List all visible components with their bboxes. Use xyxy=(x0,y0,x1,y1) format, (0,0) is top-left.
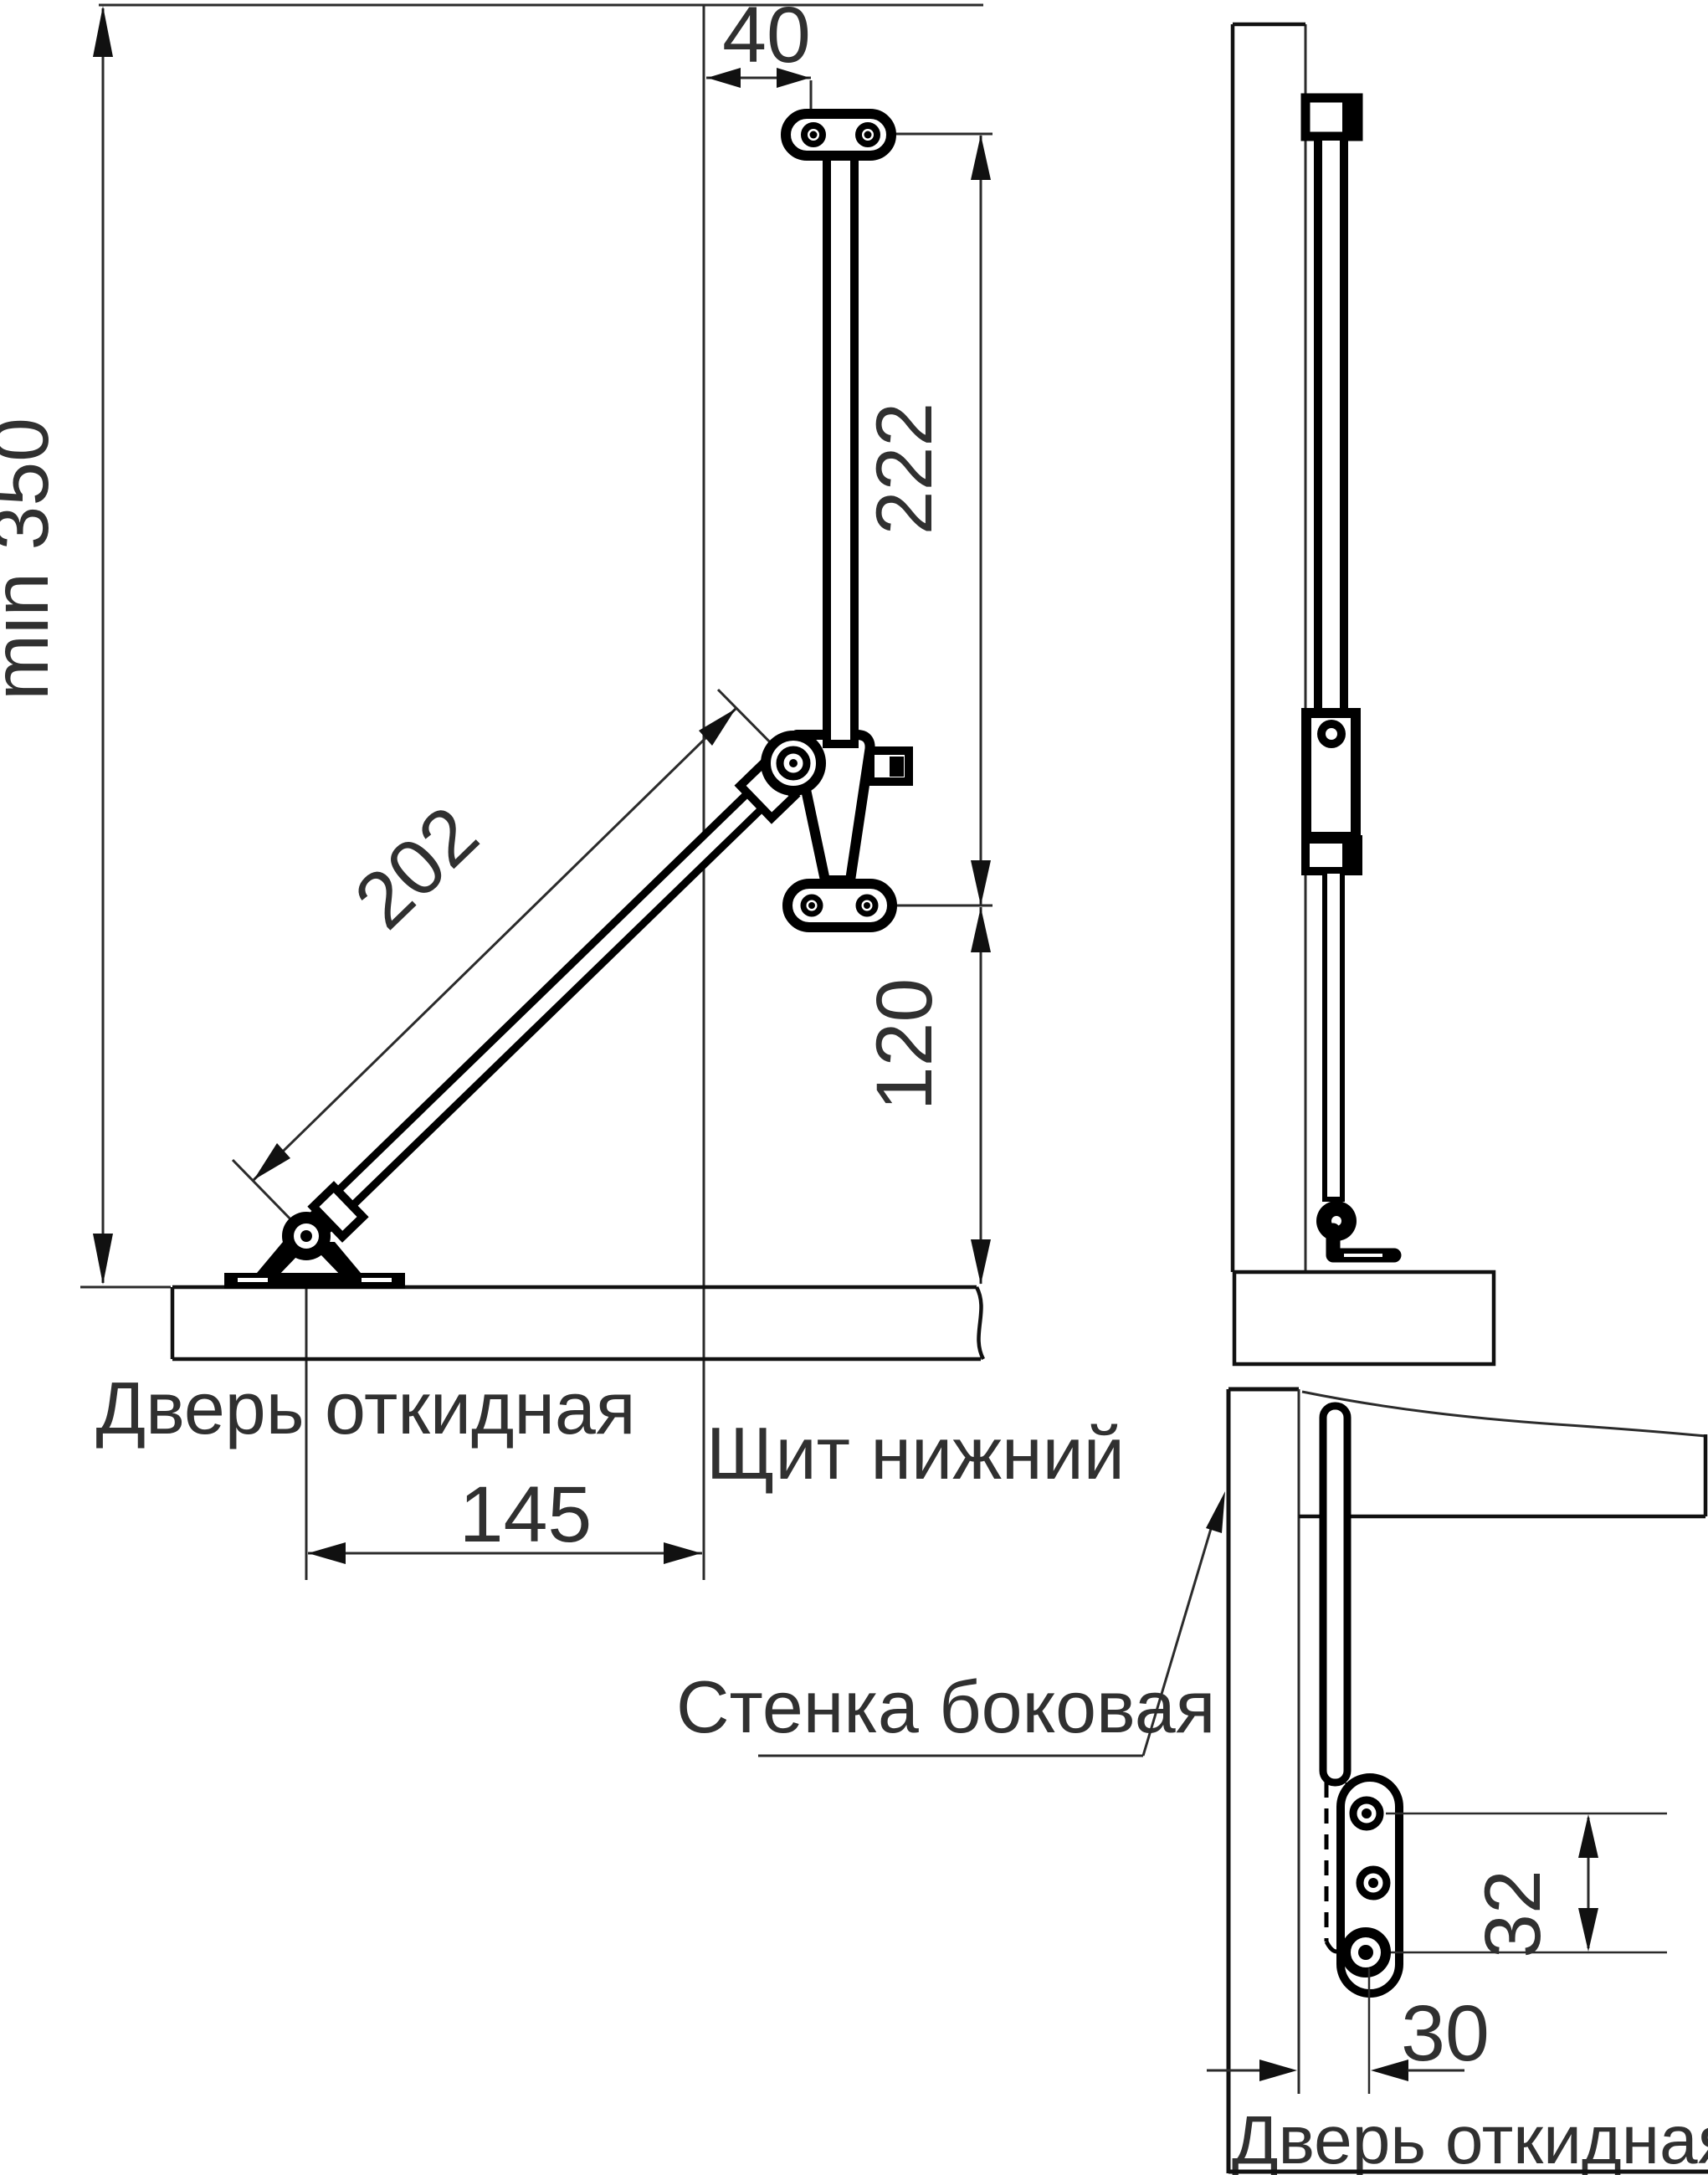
screw-hole-center xyxy=(808,902,815,909)
dim-rod-length-text: 222 xyxy=(860,403,949,536)
screw-hole-center xyxy=(864,131,872,139)
dim-hole-spacing-text: 32 xyxy=(1469,1870,1557,1958)
foot-slot-left xyxy=(238,1278,268,1282)
label-door-bottom: Дверь откидная xyxy=(1232,2102,1708,2175)
screw-hole-center xyxy=(1368,1878,1378,1888)
slider-side xyxy=(1306,713,1356,837)
mounting-plate xyxy=(1341,1777,1399,1993)
dim-mid-to-door-text: 120 xyxy=(860,978,949,1111)
drawing-page: min 350 40 222 120 xyxy=(0,0,1708,2175)
dim-min-height-text: min 350 xyxy=(0,418,65,700)
screw-hole-center xyxy=(810,131,818,139)
label-side-wall: Стенка боковая xyxy=(676,1665,1215,1748)
screw-hole-center xyxy=(864,902,870,909)
technical-drawing: min 350 40 222 120 xyxy=(0,0,1708,2175)
dim-edge-to-hole-text: 30 xyxy=(1401,1989,1490,2078)
foot-slot-right xyxy=(362,1278,392,1282)
pivot-pin xyxy=(300,1230,312,1242)
lower-rod-side xyxy=(1325,871,1342,1199)
latch-boss xyxy=(1342,843,1357,868)
rod-side xyxy=(1318,136,1344,716)
slider-pivot-hole xyxy=(1326,728,1337,740)
label-door-front: Дверь откидная xyxy=(95,1367,635,1449)
screw-hole-center xyxy=(1362,1808,1372,1818)
joint-pivot-pin xyxy=(789,759,798,767)
dim-bracket-offset-text: 40 xyxy=(722,0,811,80)
latch-side xyxy=(1305,839,1358,871)
lower-bracket xyxy=(787,884,892,927)
top-bracket-side xyxy=(1305,98,1358,136)
label-bottom-panel: Щит нижний xyxy=(706,1412,1125,1495)
pivot-hole-center xyxy=(1358,1945,1373,1960)
top-mounting-bracket xyxy=(786,114,891,156)
dim-foot-offset-text: 145 xyxy=(459,1470,592,1559)
flat-bar xyxy=(1323,1406,1347,1783)
telescopic-rod xyxy=(827,153,854,744)
latch-button-cap xyxy=(890,757,904,777)
bracket-boss xyxy=(1342,101,1357,133)
